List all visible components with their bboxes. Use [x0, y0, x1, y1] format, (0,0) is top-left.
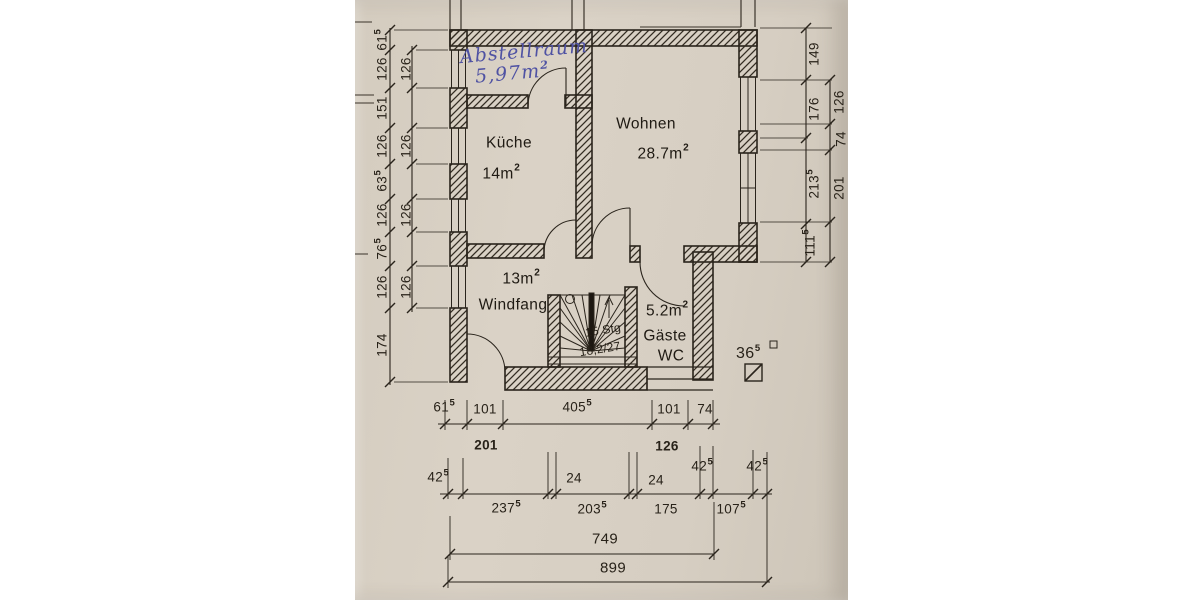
- room-label-windfang: Windfang: [479, 297, 548, 313]
- dim-right-inner-3: 1115: [803, 229, 817, 256]
- dim-right-inner-2: 2135: [807, 169, 821, 198]
- dim-left-outer-5: 126: [375, 203, 389, 226]
- dim-bottom2-2: 24: [566, 471, 582, 485]
- dim-left-inner-0: 126: [399, 57, 413, 80]
- dim-right-outer-2: 201: [832, 176, 846, 199]
- dim-left-outer-3: 126: [375, 134, 389, 157]
- dim-bottom2-6: 425: [691, 459, 712, 473]
- dim-bottom1-1: 101: [473, 402, 496, 416]
- dim-right-inner-1: 176: [807, 97, 821, 120]
- sill-height-label: 365: [736, 346, 760, 362]
- dim-left-inner-1: 126: [399, 134, 413, 157]
- dim-right-outer-1: 74: [834, 131, 848, 147]
- dim-total-outer: 899: [600, 561, 626, 576]
- dim-bottom1-2: 4055: [562, 400, 591, 414]
- dim-bottom1-3: 101: [657, 402, 680, 416]
- room-label-kueche: Küche: [486, 135, 532, 151]
- dim-left-outer-2: 151: [375, 96, 389, 119]
- room-area-kueche: 14m2: [482, 166, 519, 182]
- dim-left-inner-2: 126: [399, 203, 413, 226]
- dim-bottom1-0: 615: [433, 400, 454, 414]
- dim-bottom2-4: 24: [648, 473, 664, 487]
- dim-left-outer-0: 615: [375, 29, 389, 50]
- dim-bottom1-total-0: 201: [474, 438, 497, 452]
- dim-bottom2-1: 2375: [491, 501, 520, 515]
- room-label-gaeste: Gäste: [643, 328, 686, 344]
- dim-right-outer-0: 126: [832, 90, 846, 113]
- room-area-wohnen: 28.7m2: [637, 146, 688, 162]
- room-area-gaeste-wc: 5.2m2: [646, 303, 688, 319]
- dim-bottom2-7: 1075: [716, 502, 745, 516]
- room-label-wohnen: Wohnen: [616, 116, 676, 132]
- floor-plan-scan: Abstellraum 5,97m2 Küche 14m2 Wohnen 28.…: [0, 0, 1200, 600]
- dim-bottom2-0: 425: [427, 470, 448, 484]
- dim-left-outer-1: 126: [375, 57, 389, 80]
- dim-bottom1-4: 74: [697, 402, 713, 416]
- dim-bottom2-8: 425: [746, 459, 767, 473]
- dim-bottom2-3: 2035: [577, 502, 606, 516]
- dim-bottom2-5: 175: [654, 502, 677, 516]
- dim-left-inner-3: 126: [399, 275, 413, 298]
- room-area-windfang: 13m2: [502, 271, 539, 287]
- dim-left-outer-6: 765: [375, 238, 389, 259]
- dim-right-inner-0: 149: [807, 42, 821, 65]
- room-label-wc: WC: [658, 348, 685, 364]
- dim-left-outer-4: 635: [375, 170, 389, 191]
- dim-left-outer-7: 126: [375, 275, 389, 298]
- dim-bottom1-total-1: 126: [655, 439, 678, 453]
- dim-total-inner: 749: [592, 532, 618, 547]
- dim-left-outer-8: 174: [375, 333, 389, 356]
